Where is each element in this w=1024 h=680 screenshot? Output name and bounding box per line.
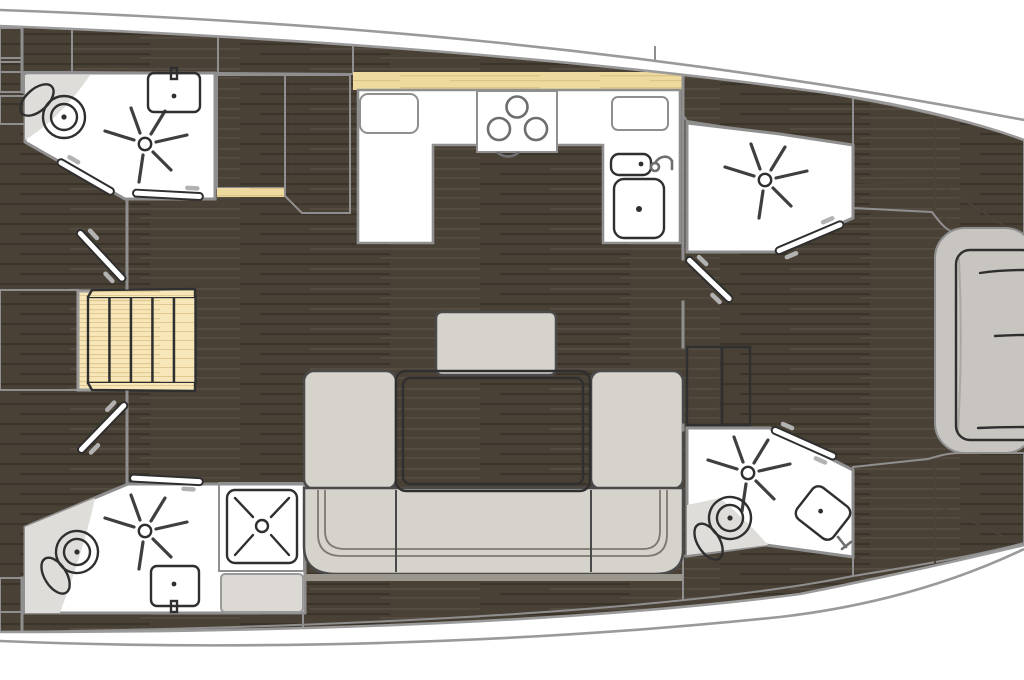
galley-backsplash (353, 72, 683, 90)
bed-frame (935, 228, 1024, 453)
head-bench (221, 574, 303, 612)
wardrobe-shelf (217, 188, 285, 197)
stove-burners-icon (477, 91, 557, 157)
forward-cabin (935, 228, 1024, 453)
steps-icon (88, 289, 196, 391)
seat-stool (436, 312, 556, 375)
sofa-base (304, 574, 683, 581)
yacht-floor-plan (0, 0, 1024, 680)
